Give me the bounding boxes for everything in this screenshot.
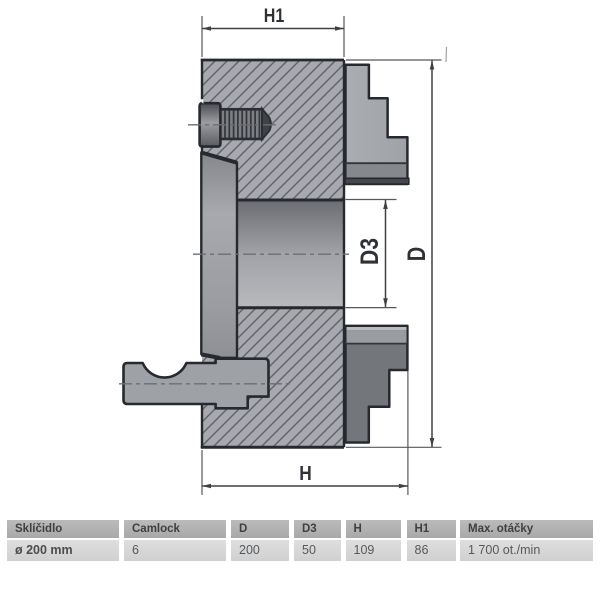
svg-text:D: D [403,247,431,262]
svg-text:D3: D3 [356,238,384,265]
svg-text:H1: H1 [264,5,285,27]
svg-text:H: H [299,463,312,485]
